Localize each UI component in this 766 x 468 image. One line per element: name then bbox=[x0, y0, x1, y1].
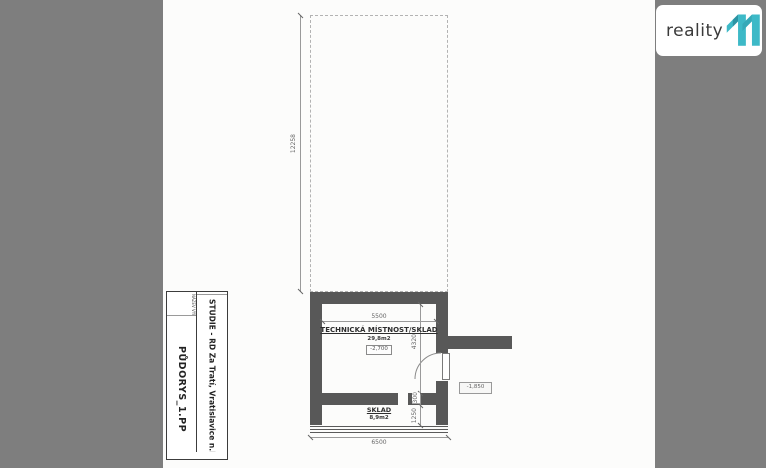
wall-top bbox=[310, 292, 448, 304]
dimension-outer-width: 6500 bbox=[310, 440, 448, 446]
dimension-line-outline-height bbox=[300, 15, 301, 292]
dimension-inner-width: 5500 bbox=[322, 314, 436, 320]
dimension-wall-thickness: 300 bbox=[412, 392, 420, 403]
title-block-drawing-cell: NÁZEV VÝKRESU PŮDORYS_1.PP bbox=[167, 292, 197, 458]
room-main-area: 29,8m2 bbox=[367, 336, 390, 342]
room-storage-name: SKLAD bbox=[367, 406, 391, 414]
garage-grille-line bbox=[310, 432, 448, 433]
dimension-line-inner-width bbox=[322, 321, 436, 322]
wall-left bbox=[310, 292, 322, 425]
logo-number-11-icon bbox=[725, 12, 765, 50]
garage-grille-line bbox=[310, 429, 448, 430]
room-storage-labels: SKLAD 8,9m2 bbox=[322, 406, 436, 421]
logo-brand-text: reality bbox=[666, 21, 723, 41]
wall-extension-right bbox=[448, 336, 512, 349]
title-block: NÁZEV VÝKRESU PŮDORYS_1.PP NÁZEV AKCE ST… bbox=[166, 291, 228, 459]
drawing-name-value: PŮDORYS_1.PP bbox=[167, 316, 196, 458]
door-leaf bbox=[442, 353, 450, 380]
garage-grille-line bbox=[310, 426, 448, 427]
outside-level-box: -1,850 bbox=[459, 382, 492, 394]
screenshot-stage: 12258 5500 4320 300 1250 6500 TECHNICKÁ … bbox=[0, 0, 766, 468]
dimension-outline-height: 12258 bbox=[291, 134, 297, 153]
room-main-labels: TECHNICKÁ MÍSTNOST/SKLAD 29,8m2 -2,700 bbox=[322, 326, 436, 355]
project-name-value: STUDIE - RD Za Tratí, Vratislavice n.N. bbox=[197, 295, 227, 460]
room-storage-area: 8,9m2 bbox=[369, 415, 388, 421]
wall-middle-left bbox=[310, 393, 398, 405]
reality11-logo: reality bbox=[656, 5, 762, 56]
dimension-line-outer-width bbox=[310, 437, 448, 438]
drawing-name-label: NÁZEV VÝKRESU bbox=[167, 292, 196, 316]
room-main-name: TECHNICKÁ MÍSTNOST/SKLAD bbox=[320, 326, 437, 334]
title-block-footer-row bbox=[166, 452, 228, 460]
title-block-project-cell: NÁZEV AKCE STUDIE - RD Za Tratí, Vratisl… bbox=[197, 292, 227, 458]
room-main-level-box: -2,700 bbox=[366, 345, 392, 355]
upper-floor-dashed-outline bbox=[310, 15, 448, 292]
